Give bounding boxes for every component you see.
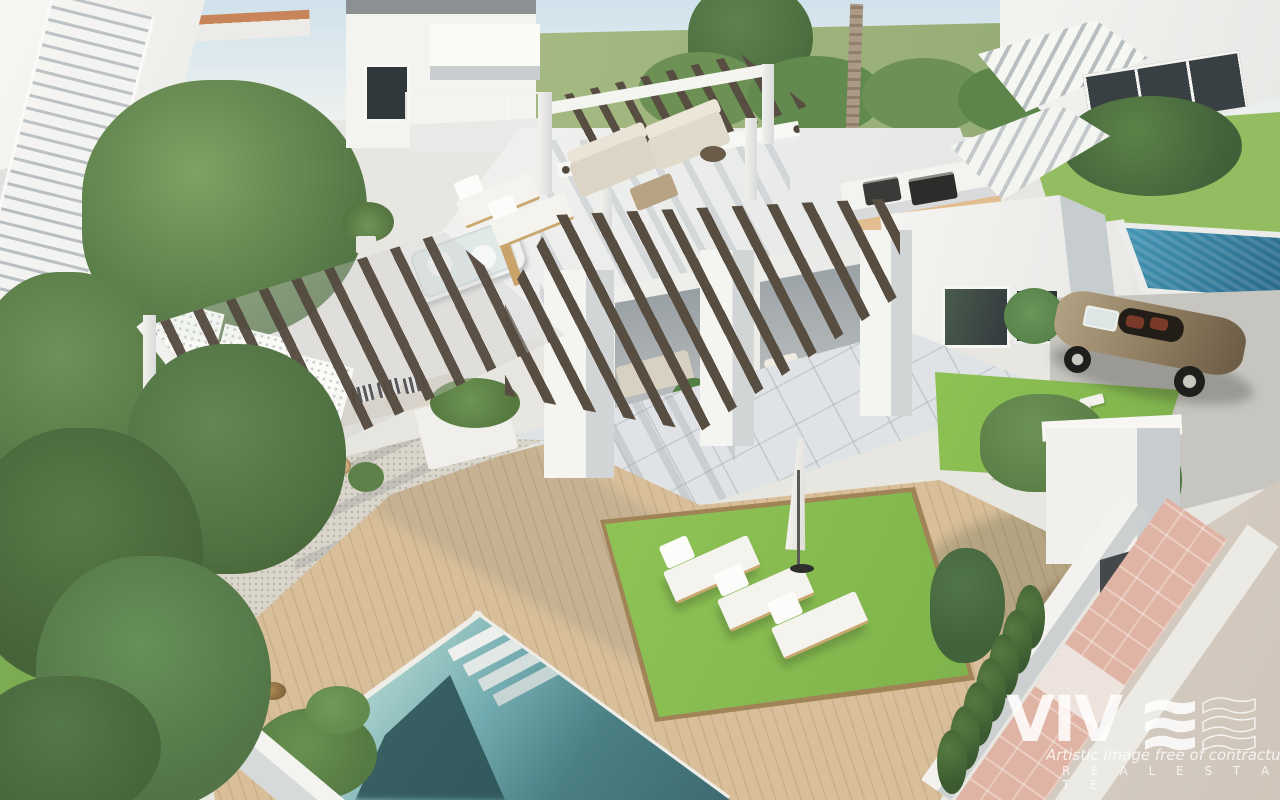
flowering-bush xyxy=(306,686,370,734)
parasol-pole xyxy=(797,470,800,568)
cypress-tree xyxy=(937,730,967,794)
neighbour-house-window xyxy=(364,64,410,122)
plant-pot xyxy=(356,236,376,253)
pergola-post xyxy=(745,118,757,200)
architectural-render: VIV Artistic image free of contractual m… xyxy=(0,0,1280,800)
neighbour-house-canopy xyxy=(430,24,540,80)
patio-plant xyxy=(348,462,384,492)
watermark-tagline: R E A L E S T A T E xyxy=(1062,764,1280,792)
watermark-brand-text: VIV xyxy=(1006,688,1121,751)
throw-blanket xyxy=(700,146,726,162)
parasol-base xyxy=(790,564,814,573)
pergola-post xyxy=(762,64,774,144)
car-wheel xyxy=(1174,366,1205,397)
car-wheel xyxy=(1064,346,1091,373)
villa-window xyxy=(942,286,1010,348)
watermark-logo-e-filled-icon xyxy=(1144,696,1196,750)
watermark-logo-e-outline-icon xyxy=(1200,694,1258,750)
pergola-post xyxy=(538,92,552,194)
